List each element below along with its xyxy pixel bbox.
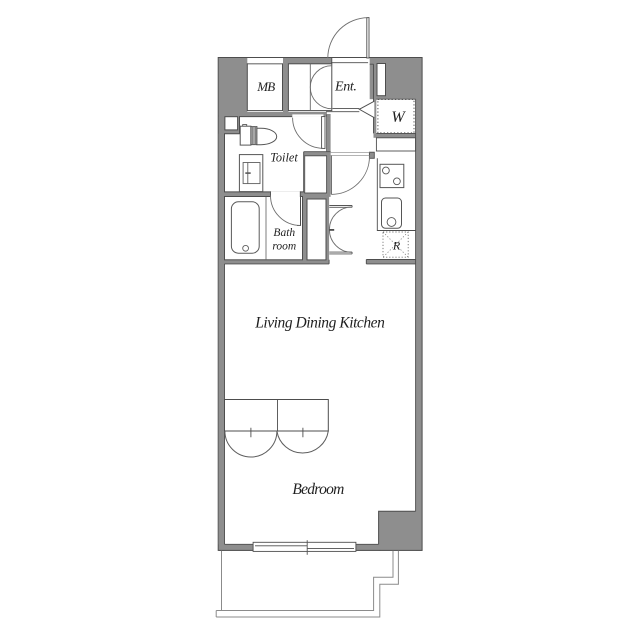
svg-text:Living Dining Kitchen: Living Dining Kitchen <box>254 315 385 332</box>
svg-text:W: W <box>391 109 406 126</box>
svg-text:Ent.: Ent. <box>334 80 357 95</box>
svg-text:room: room <box>272 241 296 253</box>
svg-text:R: R <box>392 239 401 253</box>
svg-text:Toilet: Toilet <box>270 150 298 164</box>
svg-text:Bedroom: Bedroom <box>292 481 344 498</box>
svg-text:Bath: Bath <box>273 227 295 239</box>
svg-text:MB: MB <box>256 79 275 94</box>
